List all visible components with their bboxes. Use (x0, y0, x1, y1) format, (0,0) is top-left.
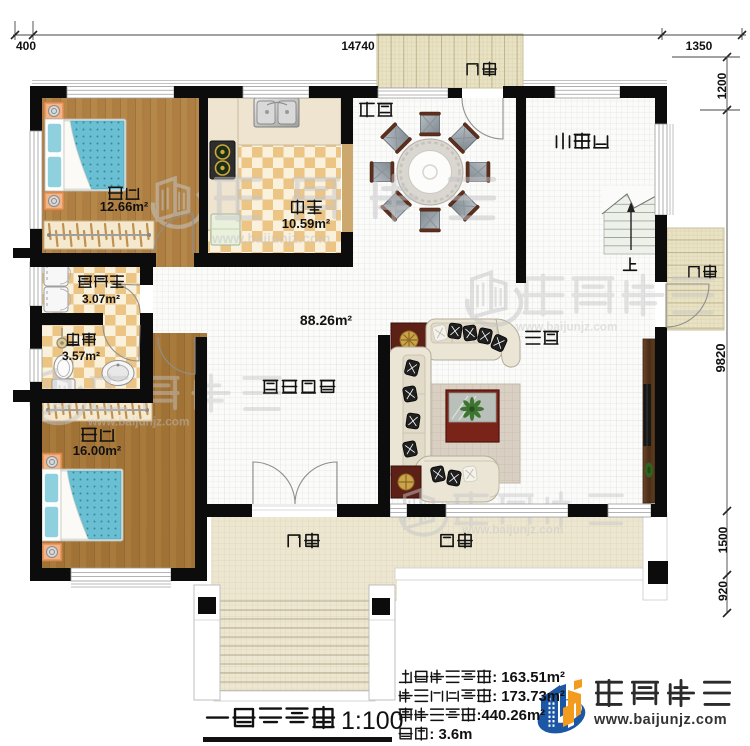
svg-text:9820: 9820 (713, 344, 728, 373)
svg-text:400: 400 (16, 39, 36, 53)
svg-text:3.07m²: 3.07m² (82, 292, 120, 306)
svg-text:1500: 1500 (716, 526, 730, 553)
svg-text:88.26m²: 88.26m² (300, 312, 352, 328)
svg-text:www.baijunjz.com: www.baijunjz.com (211, 231, 330, 246)
svg-text:www.baijunjz.com: www.baijunjz.com (87, 415, 189, 428)
svg-text:12.66m²: 12.66m² (100, 199, 149, 214)
svg-text:10.59m²: 10.59m² (282, 216, 331, 231)
svg-text:1:100: 1:100 (341, 707, 404, 735)
svg-text:1350: 1350 (686, 39, 713, 53)
svg-text::440.26m²: :440.26m² (477, 708, 546, 724)
svg-text:: 173.73m²: : 173.73m² (492, 689, 565, 705)
svg-text:14740: 14740 (341, 39, 375, 53)
svg-text:3.57m²: 3.57m² (62, 349, 100, 363)
svg-text:www.baijunjz.com: www.baijunjz.com (461, 523, 563, 536)
svg-text:16.00m²: 16.00m² (73, 443, 122, 458)
svg-text:: 3.6m: : 3.6m (429, 727, 472, 743)
svg-text:920: 920 (716, 581, 730, 601)
svg-text:: 163.51m²: : 163.51m² (492, 670, 565, 686)
svg-text:www.baijunjz.com: www.baijunjz.com (593, 712, 727, 728)
svg-text:1200: 1200 (715, 72, 729, 99)
